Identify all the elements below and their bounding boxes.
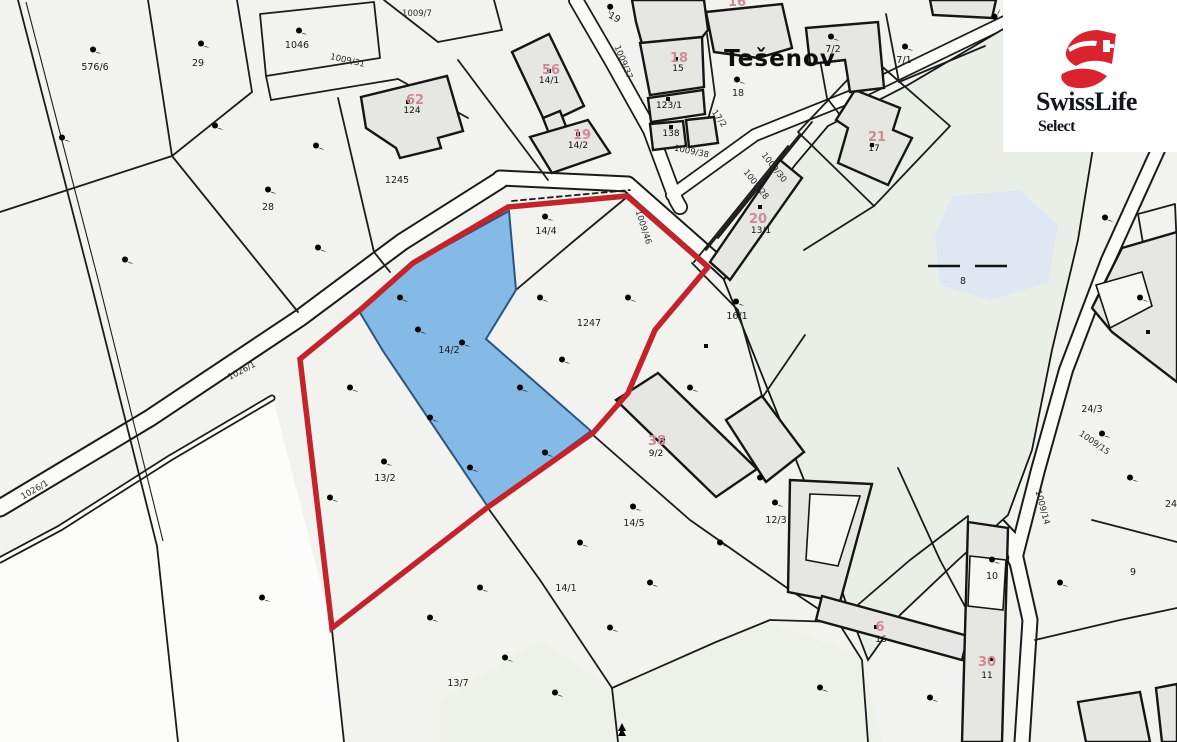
logo-brand-text: SwissLife	[1036, 87, 1137, 116]
building-11	[962, 522, 1008, 742]
parcel-number-label: 138	[662, 129, 679, 139]
building-point	[1146, 330, 1150, 334]
parcel-number-label: 12/3	[765, 515, 786, 526]
parcel-number-label: 24	[1165, 499, 1177, 510]
parcel-number-label: 10	[986, 571, 998, 582]
parcel-number-label: 13/2	[374, 473, 395, 484]
parcel-number-label: 9/2	[649, 449, 663, 459]
parcel-number-label: 1009/7	[402, 9, 432, 19]
building-point	[704, 344, 708, 348]
parcel-number-label: 56	[542, 63, 560, 78]
parcel-number-label: 29	[192, 58, 204, 69]
parcel-number-label: 38	[648, 434, 666, 449]
logo-sub-text: Select	[1038, 118, 1076, 135]
parcel-number-label: 28	[262, 202, 274, 213]
building-point	[758, 205, 762, 209]
parcel-number-label: 1247	[577, 318, 601, 329]
parcel-number-label: 6	[875, 620, 884, 635]
parcel-number-label: 1245	[385, 175, 409, 186]
parcel-number-label: 13/1	[751, 226, 771, 236]
cadastral-map-canvas: 576/629104628124519187/27/114/4124714/21…	[0, 0, 1177, 742]
parcel-number-label: 16	[875, 635, 887, 645]
parcel-number-label: 7/1	[896, 55, 911, 66]
parcel-number-label: 14/4	[535, 226, 556, 237]
parcel-number-label: 19	[573, 128, 591, 143]
parcel-number-label: 30	[978, 655, 996, 670]
parcel-number-label: 576/6	[81, 62, 108, 73]
parcel-number-label: 14/1	[555, 583, 576, 594]
parcel-number-label: 21	[868, 130, 886, 145]
parcel-number-label: 11	[981, 671, 992, 681]
parcel-number-label: 123/1	[656, 101, 682, 111]
parcel-number-label: 18	[670, 51, 688, 66]
parcel-number-label: 13/7	[447, 678, 468, 689]
parcel-number-label: 62	[406, 93, 424, 108]
parcel-number-label: 17	[868, 144, 879, 154]
parcel-number-label: 20	[749, 212, 767, 227]
place-name-label: Tešenov	[724, 46, 836, 72]
parcel-number-label: 24/3	[1081, 404, 1102, 415]
parcel-number-label: 16	[728, 0, 746, 10]
swisslife-logo: SwissLife Select	[1003, 0, 1177, 152]
building-17-7	[686, 117, 718, 147]
parcel-number-label: 9	[1130, 567, 1136, 578]
cadastral-map-viewer: 576/629104628124519187/27/114/4124714/21…	[0, 0, 1177, 742]
parcel-number-label: 16/1	[726, 311, 747, 322]
parcel-number-label: 18	[732, 88, 744, 99]
parcel-number-label: 14/5	[623, 518, 644, 529]
parcel-number-label: 8	[960, 276, 966, 287]
parcel-number-label: 14/2	[438, 345, 459, 356]
parcel-number-label: 1046	[285, 40, 309, 51]
